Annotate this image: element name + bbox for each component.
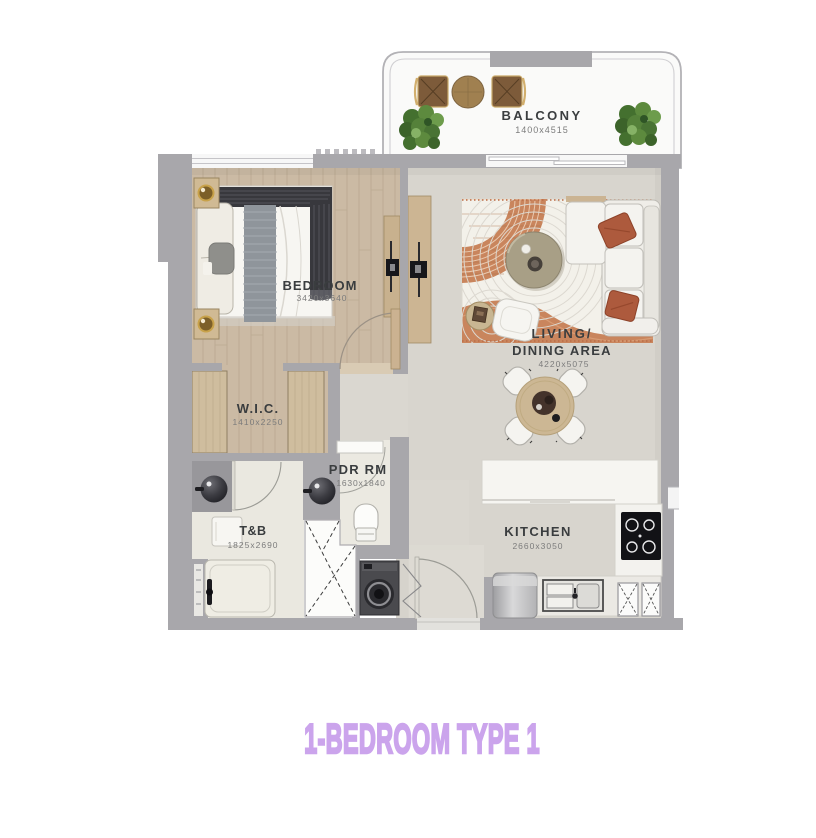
svg-text:T&B: T&B	[239, 524, 266, 538]
svg-text:KITCHEN: KITCHEN	[504, 524, 572, 539]
svg-text:BALCONY: BALCONY	[501, 108, 582, 123]
svg-text:3420x3640: 3420x3640	[296, 293, 347, 303]
svg-text:1-BEDROOM TYPE 1: 1-BEDROOM TYPE 1	[304, 716, 540, 763]
svg-text:1400x4515: 1400x4515	[515, 125, 569, 135]
svg-text:DINING AREA: DINING AREA	[512, 343, 612, 358]
svg-text:W.I.C.: W.I.C.	[237, 401, 280, 416]
svg-text:1630x1840: 1630x1840	[336, 478, 385, 488]
svg-text:PDR RM: PDR RM	[329, 462, 387, 477]
svg-text:1410x2250: 1410x2250	[232, 417, 283, 427]
svg-text:4220x5075: 4220x5075	[538, 359, 589, 369]
svg-text:BEDROOM: BEDROOM	[283, 278, 358, 293]
svg-text:2660x3050: 2660x3050	[512, 541, 563, 551]
svg-text:LIVING/: LIVING/	[532, 326, 593, 341]
svg-text:1825x2690: 1825x2690	[227, 540, 278, 550]
